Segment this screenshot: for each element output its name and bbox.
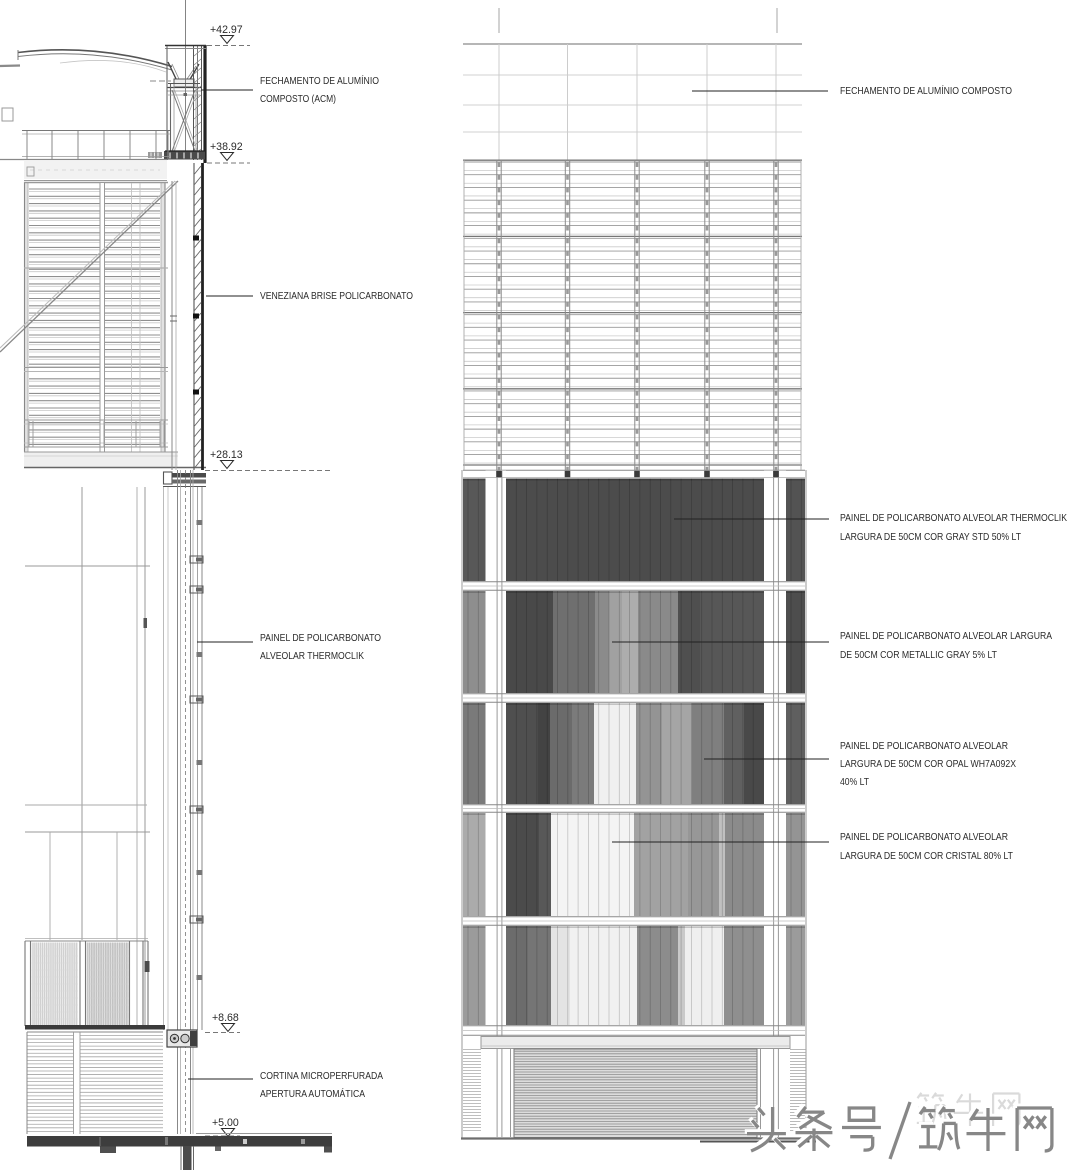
svg-text:DE 50CM COR METALLIC GRAY 5% L: DE 50CM COR METALLIC GRAY 5% LT xyxy=(840,650,998,661)
svg-text:VENEZIANA BRISE POLICARBONATO: VENEZIANA BRISE POLICARBONATO xyxy=(260,291,413,302)
svg-text:+8.68: +8.68 xyxy=(212,1012,239,1024)
svg-text:40% LT: 40% LT xyxy=(840,777,870,788)
svg-text:ALVEOLAR THERMOCLIK: ALVEOLAR THERMOCLIK xyxy=(260,651,364,662)
svg-text:CORTINA MICROPERFURADA: CORTINA MICROPERFURADA xyxy=(260,1071,383,1082)
svg-text:LARGURA DE 50CM COR OPAL WH7A0: LARGURA DE 50CM COR OPAL WH7A092X xyxy=(840,759,1016,770)
svg-text:COMPOSTO (ACM): COMPOSTO (ACM) xyxy=(260,94,336,105)
svg-text:PAINEL DE POLICARBONATO ALVEOL: PAINEL DE POLICARBONATO ALVEOLAR xyxy=(840,741,1008,752)
svg-text:+42.97: +42.97 xyxy=(210,24,243,36)
svg-text:LARGURA DE 50CM COR GRAY STD 5: LARGURA DE 50CM COR GRAY STD 50% LT xyxy=(840,532,1022,543)
svg-text:+38.92: +38.92 xyxy=(210,141,243,153)
svg-text:PAINEL DE POLICARBONATO ALVEOL: PAINEL DE POLICARBONATO ALVEOLAR xyxy=(840,832,1008,843)
svg-text:LARGURA DE 50CM COR CRISTAL 80: LARGURA DE 50CM COR CRISTAL 80% LT xyxy=(840,851,1014,862)
svg-text:+5.00: +5.00 xyxy=(212,1117,239,1129)
svg-text:+28.13: +28.13 xyxy=(210,449,243,461)
svg-text:FECHAMENTO DE ALUMÍNIO COMPOST: FECHAMENTO DE ALUMÍNIO COMPOSTO xyxy=(840,84,1012,97)
svg-text:PAINEL DE POLICARBONATO ALVEOL: PAINEL DE POLICARBONATO ALVEOLAR LARGURA xyxy=(840,631,1052,642)
svg-text:PAINEL DE POLICARBONATO ALVEOL: PAINEL DE POLICARBONATO ALVEOLAR THERMOC… xyxy=(840,513,1067,524)
svg-text:FECHAMENTO DE ALUMÍNIO: FECHAMENTO DE ALUMÍNIO xyxy=(260,74,379,87)
svg-text:PAINEL DE POLICARBONATO: PAINEL DE POLICARBONATO xyxy=(260,633,381,644)
svg-text:APERTURA AUTOMÁTICA: APERTURA AUTOMÁTICA xyxy=(260,1087,365,1100)
